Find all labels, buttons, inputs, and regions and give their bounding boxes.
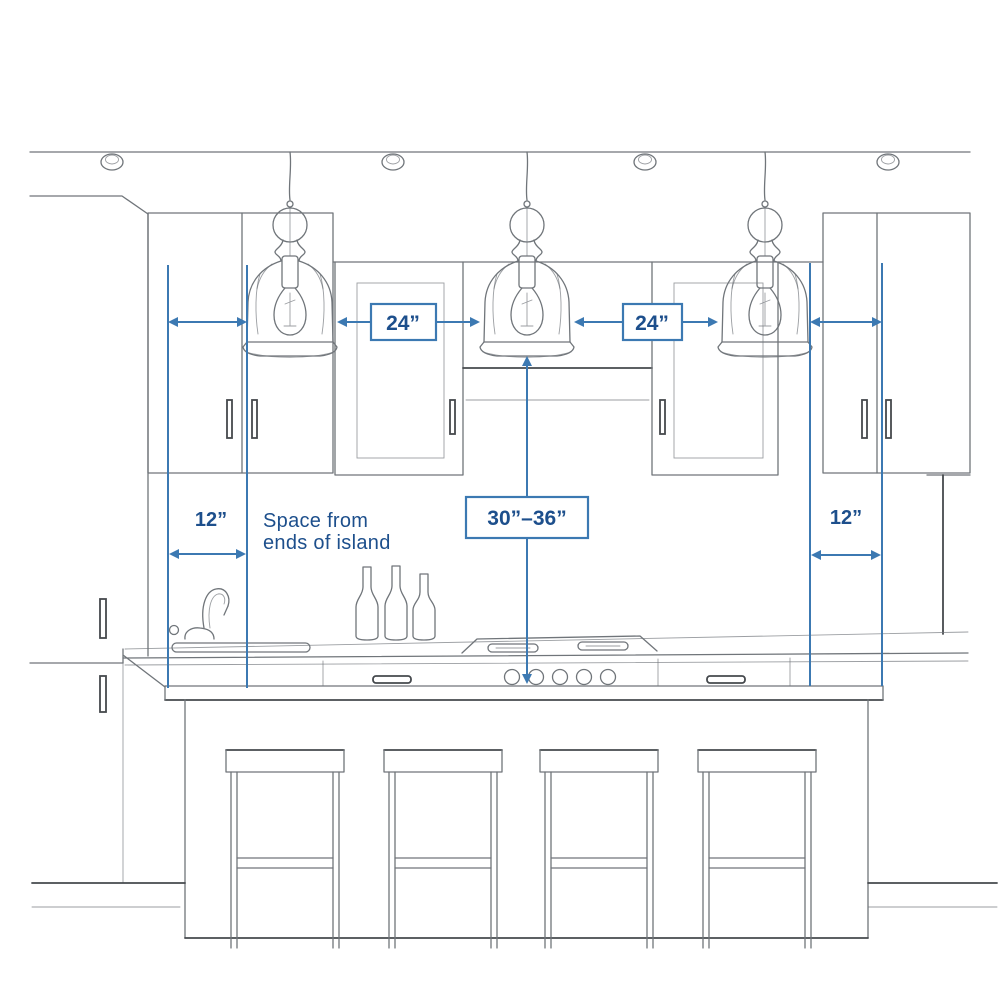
- spacing-label-right: 24”: [635, 312, 669, 335]
- bar-stool: [226, 750, 344, 948]
- drawer-handle: [707, 676, 745, 683]
- countertop: [123, 632, 968, 687]
- range-hood-niche: [463, 368, 652, 400]
- cabinet-handle: [252, 400, 257, 438]
- recessed-light: [101, 154, 123, 170]
- ceiling: [30, 152, 970, 170]
- pendant-lights: [243, 152, 812, 357]
- upper-cabinet-center-right: [652, 262, 778, 475]
- cabinet-handle: [660, 400, 665, 434]
- faucet: [170, 589, 229, 639]
- cabinet-handle: [100, 676, 106, 712]
- pendant-light-2: [480, 152, 574, 357]
- bar-stool: [384, 750, 502, 948]
- hang-height-label: 30”–36”: [487, 507, 566, 530]
- bar-stools: [226, 750, 816, 948]
- bar-stool: [540, 750, 658, 948]
- recessed-light: [877, 154, 899, 170]
- island-base: [165, 686, 883, 938]
- recessed-light: [634, 154, 656, 170]
- diagram-canvas: 24” 24” 30”–36” 12” 12” Space from ends …: [0, 0, 1000, 1000]
- cabinet-handle: [100, 599, 106, 638]
- cabinet-handle: [862, 400, 867, 438]
- left-wall-and-soffit: [30, 196, 148, 883]
- pendant-light-1: [243, 152, 337, 357]
- island-note-line1: Space from: [263, 510, 368, 532]
- floor: [32, 883, 997, 907]
- cabinet-handle: [227, 400, 232, 438]
- cooktop: [462, 636, 657, 685]
- end-offset-label-left: 12”: [195, 509, 227, 531]
- spacing-label-left: 24”: [386, 312, 420, 335]
- bar-stool: [698, 750, 816, 948]
- island-note-line2: ends of island: [263, 532, 391, 554]
- cabinet-handle: [450, 400, 455, 434]
- drawer-handle: [373, 676, 411, 683]
- pendant-light-3: [718, 152, 812, 357]
- wine-bottles: [356, 566, 435, 640]
- cooktop-knobs: [505, 670, 616, 685]
- cabinet-handle: [886, 400, 891, 438]
- end-offset-label-right: 12”: [830, 507, 862, 529]
- kitchen-pendant-spacing-diagram: 24” 24” 30”–36” 12” 12” Space from ends …: [0, 0, 1000, 1000]
- upper-cabinet-right: [823, 213, 970, 634]
- recessed-light: [382, 154, 404, 170]
